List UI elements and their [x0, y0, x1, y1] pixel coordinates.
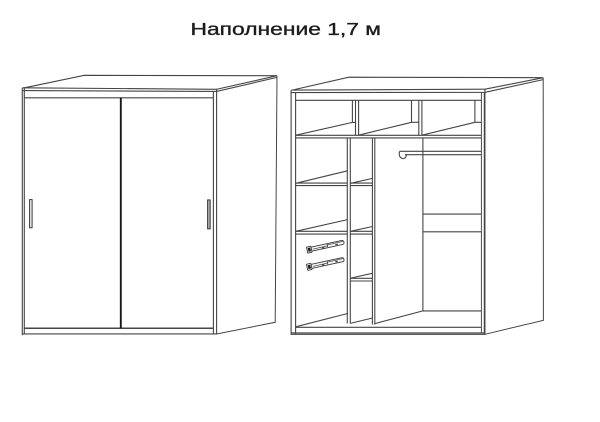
svg-text:Наполнение 1,7 м: Наполнение 1,7 м [191, 19, 382, 39]
